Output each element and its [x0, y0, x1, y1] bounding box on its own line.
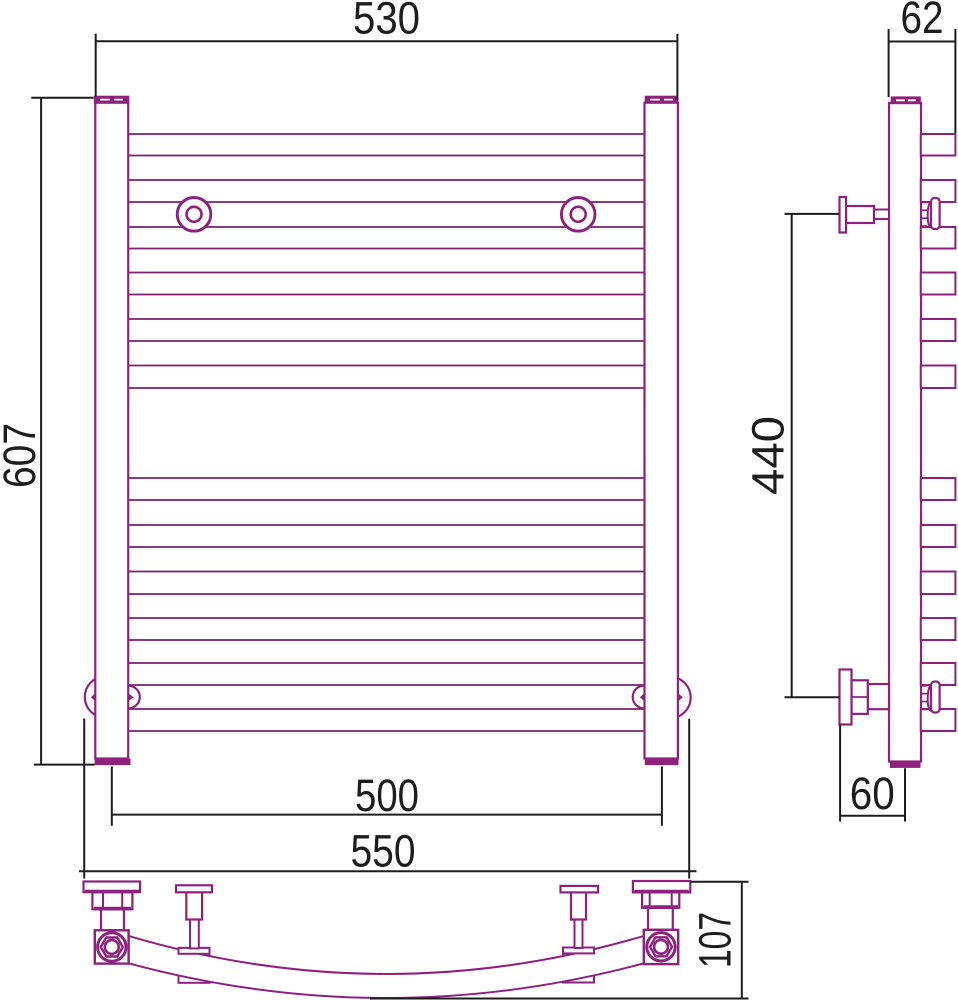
- svg-text:500: 500: [355, 770, 419, 821]
- svg-text:530: 530: [353, 0, 420, 44]
- svg-text:440: 440: [743, 416, 794, 495]
- svg-text:62: 62: [901, 0, 944, 43]
- svg-text:60: 60: [850, 768, 895, 819]
- svg-text:107: 107: [690, 912, 741, 968]
- svg-text:550: 550: [351, 826, 416, 877]
- svg-text:607: 607: [0, 423, 45, 488]
